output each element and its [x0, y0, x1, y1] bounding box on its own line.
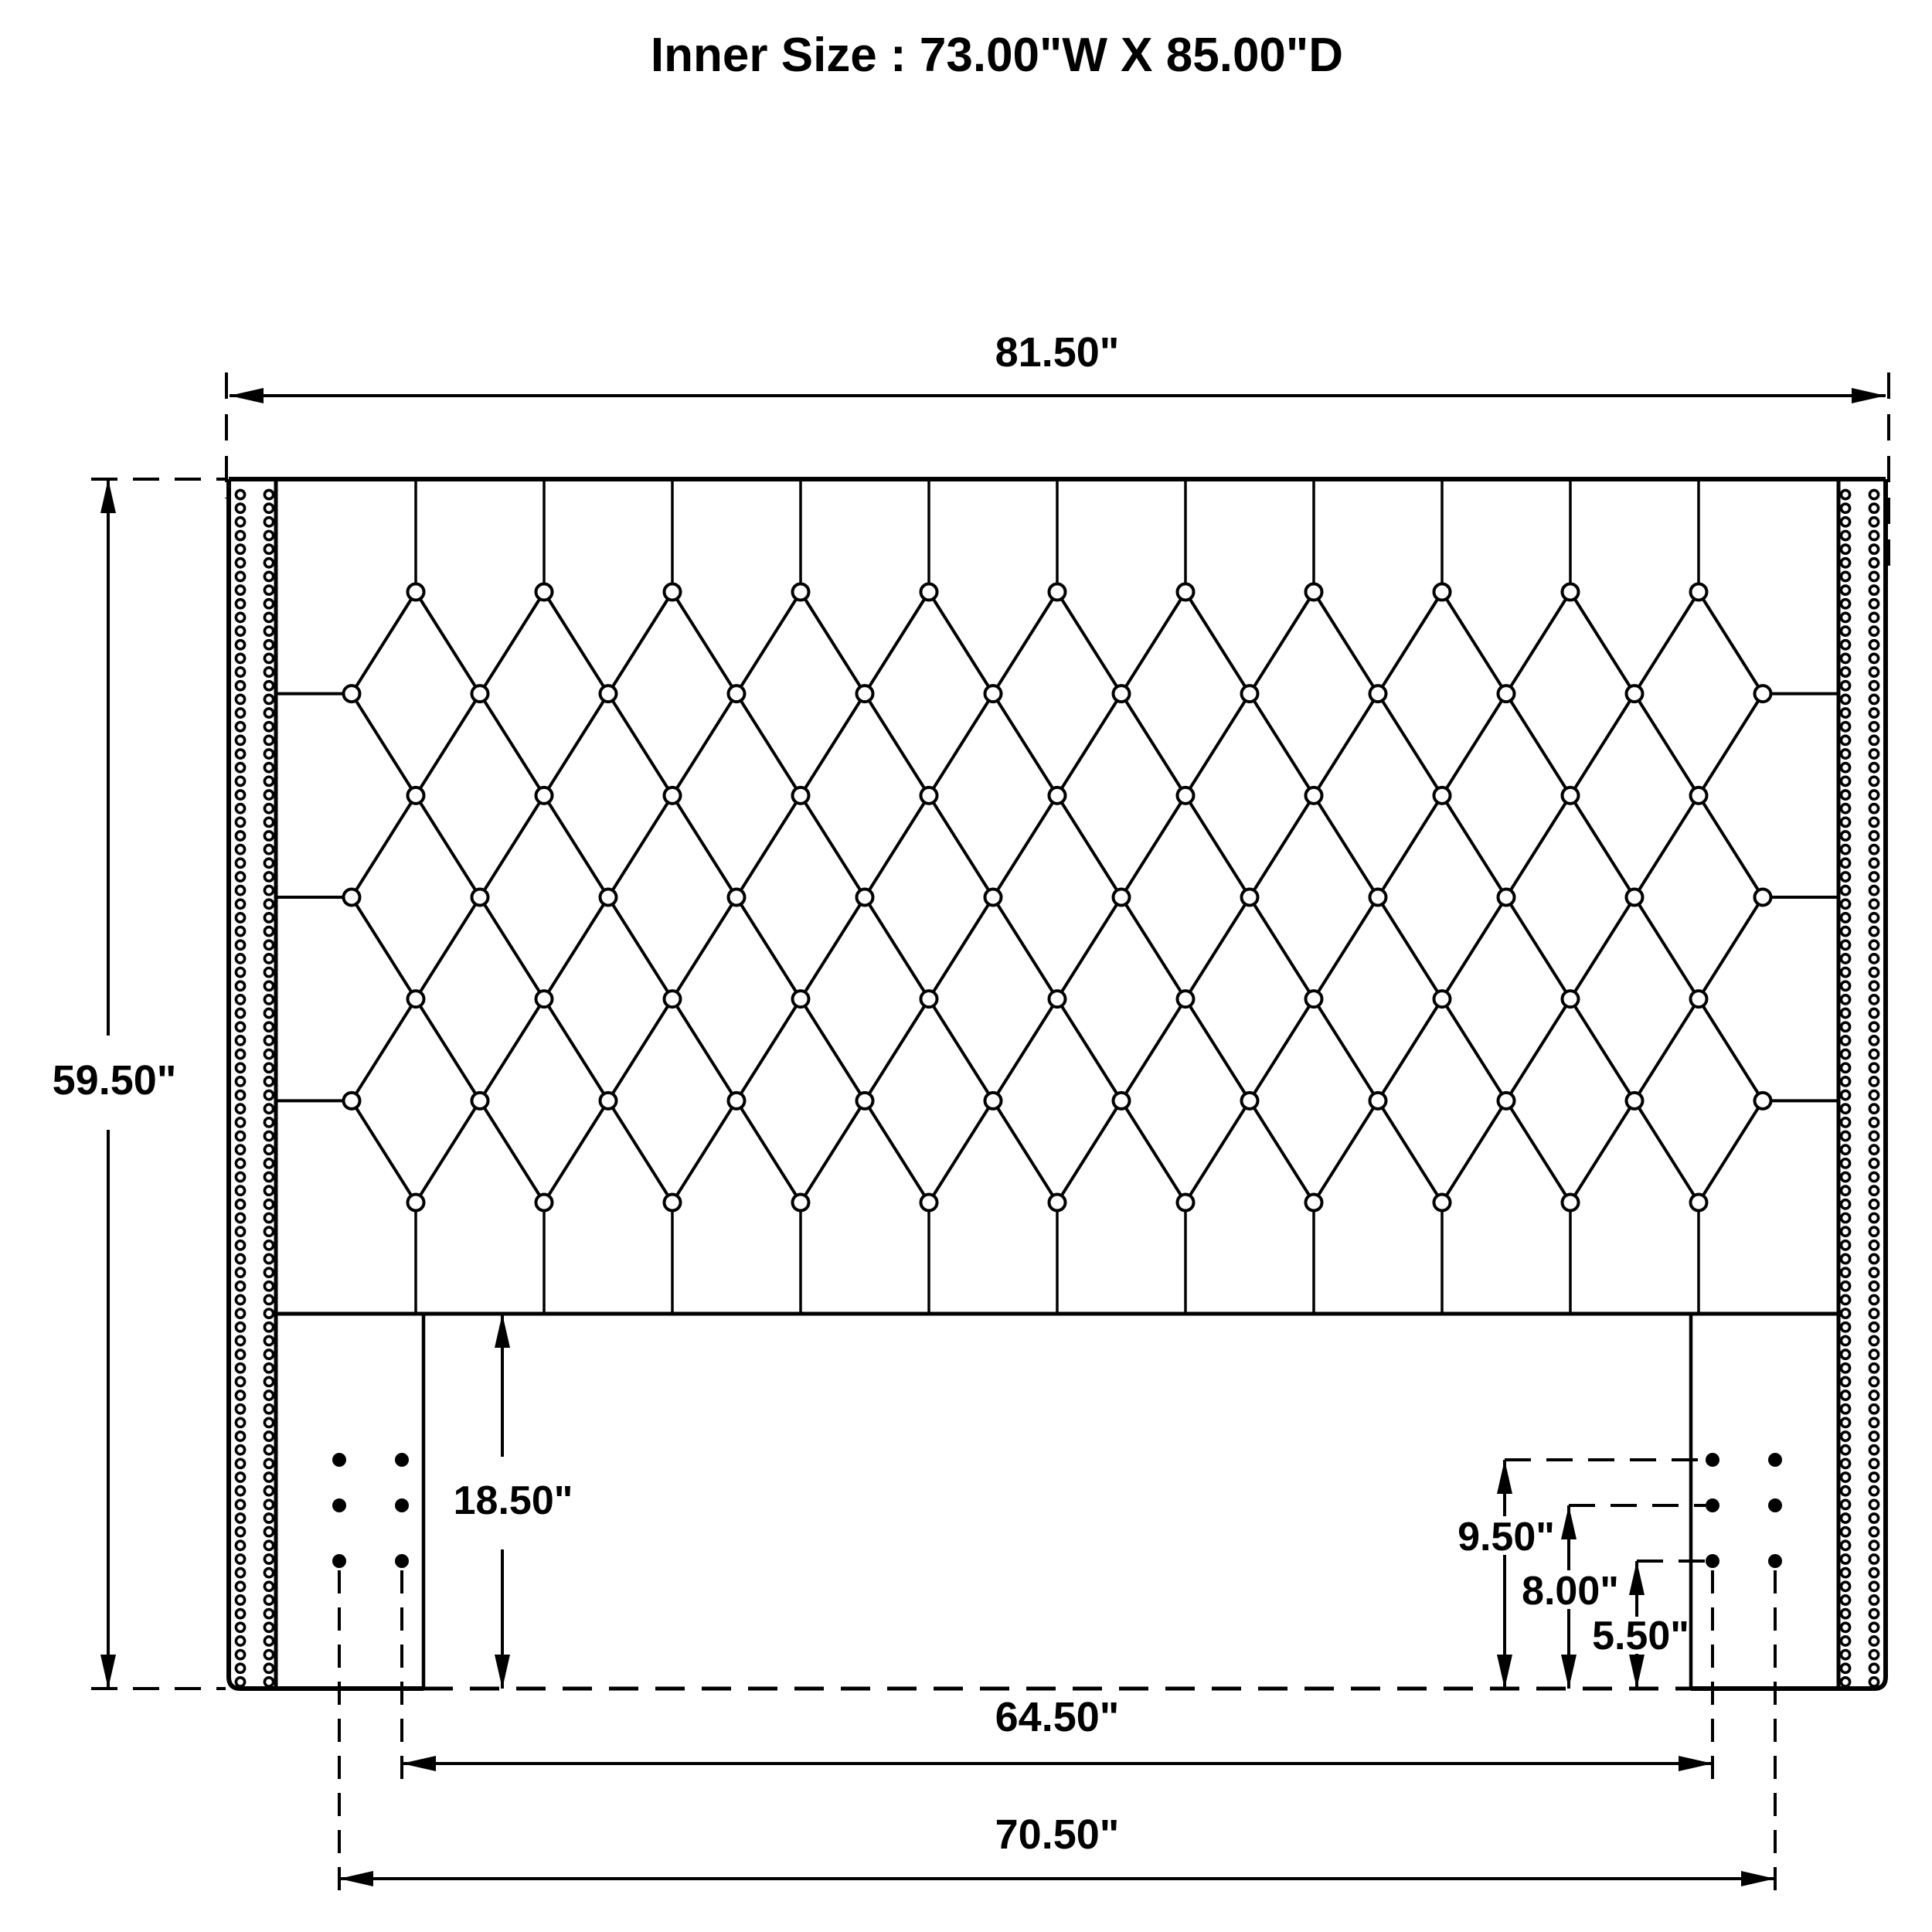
nailhead-circle	[264, 518, 273, 526]
nailhead-circle	[236, 818, 244, 826]
nailhead-circle	[1869, 1309, 1878, 1318]
tuft-diagonal	[1442, 592, 1506, 694]
tuft-diagonal	[1185, 694, 1250, 796]
bolt-hole	[1768, 1498, 1782, 1512]
nailhead-circle	[1869, 1104, 1878, 1113]
nailhead-circle	[264, 764, 273, 772]
tuft-diagonal	[1250, 795, 1314, 897]
tuft-button	[921, 787, 937, 804]
nailhead-circle	[1841, 1459, 1849, 1468]
nailhead-circle	[236, 1090, 244, 1099]
nailhead-circle	[1869, 586, 1878, 594]
nailhead-circle	[264, 995, 273, 1004]
tuft-diagonal	[736, 999, 801, 1101]
tuft-diagonal	[929, 1100, 993, 1202]
dim-arrow	[1679, 1756, 1713, 1771]
nailhead-circle	[264, 1555, 273, 1563]
tuft-button	[600, 1093, 617, 1109]
nailhead-circle	[1869, 490, 1878, 498]
nailhead-circle	[236, 1200, 244, 1209]
nailhead-circle	[236, 668, 244, 676]
nailhead-circle	[236, 654, 244, 662]
nailhead-circle	[236, 913, 244, 922]
tuft-button	[1627, 889, 1643, 906]
tuft-diagonal	[608, 795, 672, 897]
nailhead-circle	[264, 900, 273, 908]
nailhead-circle	[1869, 1664, 1878, 1672]
nailhead-circle	[264, 1514, 273, 1522]
tuft-diagonal	[1057, 999, 1121, 1101]
nailhead-circle	[1841, 1350, 1849, 1359]
nailhead-circle	[264, 1651, 273, 1659]
dim-label-leg-height: 18.50"	[454, 1478, 573, 1523]
dim-arrow	[1497, 1655, 1512, 1689]
nailhead-circle	[1841, 1309, 1849, 1318]
nailhead-circle	[1869, 1596, 1878, 1604]
nailhead-circle	[236, 1678, 244, 1686]
nailhead-circle	[1869, 1118, 1878, 1127]
nailhead-circle	[264, 1200, 273, 1209]
nailhead-circle	[1869, 1022, 1878, 1031]
tuft-button	[1563, 1195, 1579, 1211]
nailhead-circle	[1841, 1049, 1849, 1058]
headboard-dimension-drawing: Inner Size : 73.00"W X 85.00"D 81.50" 59…	[0, 0, 1932, 1932]
tuft-button	[1691, 991, 1707, 1007]
nailhead-circle	[264, 1063, 273, 1072]
dim-label-bolt-span-inner: 64.50"	[995, 1694, 1120, 1740]
nailhead-circle	[264, 723, 273, 731]
nailhead-circle	[264, 1610, 273, 1618]
dim-arrow	[100, 479, 116, 513]
tuft-button	[793, 1195, 809, 1211]
nailhead-circle	[264, 1104, 273, 1113]
nailhead-circle	[236, 490, 244, 498]
tuft-diagonal	[929, 694, 993, 796]
nailhead-circle	[264, 654, 273, 662]
tuft-diagonal	[1378, 897, 1442, 999]
nailhead-circle	[236, 1541, 244, 1549]
nailhead-circle	[264, 559, 273, 567]
nailhead-circle	[1841, 586, 1849, 594]
tuft-diagonal	[1699, 897, 1763, 999]
tuft-button	[793, 991, 809, 1007]
tuft-button	[1178, 1195, 1194, 1211]
tuft-diagonal	[1634, 795, 1699, 897]
tuft-button	[665, 1195, 681, 1211]
nailhead-circle	[1869, 559, 1878, 567]
nailhead-circle	[236, 1186, 244, 1195]
dim-arrow	[1629, 1561, 1645, 1595]
nailhead-circle	[1841, 954, 1849, 963]
nailhead-circle	[264, 1500, 273, 1509]
tuft-button	[408, 991, 424, 1007]
nailhead-circle	[1841, 1418, 1849, 1427]
dim-arrow	[1561, 1505, 1577, 1539]
tuft-button	[1178, 584, 1194, 600]
nailhead-circle	[264, 872, 273, 881]
nailhead-circle	[1869, 1241, 1878, 1250]
tuft-button	[1691, 1195, 1707, 1211]
dim-label-bolt-row-bottom: 5.50"	[1592, 1614, 1689, 1658]
tuft-button	[344, 685, 360, 702]
nailhead-circle	[1841, 1651, 1849, 1659]
nailhead-circle	[1841, 531, 1849, 539]
dimension-lines	[91, 372, 1889, 1897]
tuft-button	[1242, 1093, 1258, 1109]
nailhead-circle	[236, 1336, 244, 1345]
tuft-diagonal	[416, 795, 480, 897]
tuft-diagonal	[1057, 592, 1121, 694]
tuft-diagonal	[1121, 897, 1185, 999]
nailhead-circle	[236, 1582, 244, 1590]
tuft-button	[985, 1093, 1002, 1109]
nailhead-circle	[1841, 968, 1849, 977]
tuft-button	[1691, 584, 1707, 600]
nailhead-circle	[1841, 1268, 1849, 1277]
tuft-button	[344, 889, 360, 906]
nailhead-circle	[236, 981, 244, 990]
tuft-button	[857, 685, 873, 702]
nailhead-circle	[236, 954, 244, 963]
tuft-button	[985, 685, 1002, 702]
nailhead-circle	[264, 1623, 273, 1631]
tuft-diagonal	[1314, 795, 1378, 897]
nailhead-circle	[236, 1172, 244, 1181]
tuft-diagonal	[1057, 795, 1121, 897]
nailhead-circle	[236, 531, 244, 539]
tuft-diagonal	[1699, 694, 1763, 796]
nailhead-circle	[236, 1063, 244, 1072]
tuft-button	[1049, 787, 1066, 804]
nailhead-circle	[264, 1118, 273, 1127]
tuft-diagonal	[865, 694, 929, 796]
nailhead-circle	[236, 627, 244, 635]
tuft-diagonal	[736, 592, 801, 694]
nailhead-circle	[236, 1377, 244, 1386]
nailhead-circle	[236, 1036, 244, 1045]
nailhead-circle	[1841, 1569, 1849, 1577]
tuft-diagonal	[544, 592, 608, 694]
tuft-diagonal	[1570, 694, 1634, 796]
nailhead-circle	[1869, 777, 1878, 785]
tuft-diagonal	[352, 999, 416, 1101]
bolt-hole	[395, 1498, 409, 1512]
tuft-diagonal	[608, 897, 672, 999]
nailhead-circle	[1841, 1432, 1849, 1440]
nailhead-circle	[264, 1295, 273, 1304]
tuft-button	[857, 1093, 873, 1109]
nailhead-circle	[1869, 1336, 1878, 1345]
nailhead-circle	[1869, 804, 1878, 813]
nailhead-circle	[1869, 886, 1878, 895]
nailhead-circle	[264, 1022, 273, 1031]
nailhead-circle	[1869, 572, 1878, 580]
nailhead-circle	[1869, 627, 1878, 635]
nailhead-circle	[236, 641, 244, 649]
nailhead-circle	[236, 1282, 244, 1291]
tuft-button	[408, 584, 424, 600]
nailhead-circle	[236, 504, 244, 512]
tuft-diagonal	[352, 592, 416, 694]
tuft-diagonal	[352, 897, 416, 999]
nailhead-circle	[264, 750, 273, 758]
nailhead-circle	[236, 900, 244, 908]
tuft-diagonal	[993, 592, 1057, 694]
tuft-diagonal	[1442, 795, 1506, 897]
tufting-buttons	[344, 584, 1771, 1211]
tuft-diagonal	[1699, 1100, 1763, 1202]
tuft-diagonal	[416, 999, 480, 1101]
nailhead-circle	[236, 559, 244, 567]
nailhead-circle	[1869, 913, 1878, 922]
nailhead-circle	[236, 845, 244, 854]
nailhead-circle	[1841, 709, 1849, 717]
nailhead-circle	[264, 777, 273, 785]
nailhead-circle	[264, 627, 273, 635]
nailhead-circle	[264, 1364, 273, 1372]
drawing-canvas: Inner Size : 73.00"W X 85.00"D 81.50" 59…	[0, 0, 1932, 1932]
dim-arrow	[1741, 1871, 1775, 1886]
tuft-diagonal	[672, 999, 736, 1101]
nailhead-circle	[1841, 1022, 1849, 1031]
nailhead-circle	[1841, 1036, 1849, 1045]
nailhead-circle	[1869, 1405, 1878, 1413]
nailhead-circle	[236, 545, 244, 553]
nailhead-circle	[1869, 1514, 1878, 1522]
bolt-hole	[1768, 1453, 1782, 1467]
tuft-diagonal	[1250, 592, 1314, 694]
tufting-lattice	[276, 479, 1838, 1314]
nailhead-circle	[264, 1254, 273, 1263]
nailhead-circle	[264, 791, 273, 799]
nailhead-circle	[264, 1227, 273, 1236]
drawing-title: Inner Size : 73.00"W X 85.00"D	[651, 29, 1343, 82]
nailhead-circle	[264, 1036, 273, 1045]
nailhead-circle	[236, 1446, 244, 1454]
nailhead-circle	[1869, 545, 1878, 553]
tuft-button	[1434, 787, 1451, 804]
tuft-diagonal	[1570, 1100, 1634, 1202]
nailhead-circle	[264, 545, 273, 553]
tuft-button	[1242, 889, 1258, 906]
nailhead-circle	[236, 736, 244, 744]
nailhead-circle	[236, 1364, 244, 1372]
nailhead-circle	[236, 1295, 244, 1304]
tuft-diagonal	[352, 795, 416, 897]
nailhead-circle	[1841, 668, 1849, 676]
tuft-button	[1434, 991, 1451, 1007]
nailhead-circle	[1841, 1364, 1849, 1372]
tuft-diagonal	[993, 795, 1057, 897]
nailhead-circle	[1869, 1678, 1878, 1686]
nailhead-circle	[236, 1664, 244, 1672]
nailhead-circle	[1869, 791, 1878, 799]
nailhead-circle	[1841, 1241, 1849, 1250]
nailhead-circle	[1841, 518, 1849, 526]
nailhead-circle	[1869, 682, 1878, 690]
nailhead-circle	[264, 1582, 273, 1590]
tuft-button	[1306, 1195, 1322, 1211]
tuft-button	[1114, 685, 1130, 702]
nailhead-circle	[1869, 1295, 1878, 1304]
tuft-diagonal	[544, 1100, 608, 1202]
bolt-hole	[1768, 1554, 1782, 1568]
nailhead-circle	[1841, 886, 1849, 895]
tuft-diagonal	[608, 694, 672, 796]
nailhead-circle	[236, 1555, 244, 1563]
tuft-diagonal	[929, 592, 993, 694]
nailhead-circle	[264, 832, 273, 840]
tuft-diagonal	[865, 592, 929, 694]
tuft-diagonal	[544, 795, 608, 897]
tuft-button	[1306, 787, 1322, 804]
nailhead-circle	[1841, 1090, 1849, 1099]
tuft-diagonal	[1570, 897, 1634, 999]
bolt-hole	[395, 1554, 409, 1568]
nailhead-circle	[1841, 1637, 1849, 1645]
nailhead-circle	[1869, 668, 1878, 676]
tuft-button	[1049, 584, 1066, 600]
tuft-diagonal	[480, 897, 544, 999]
tuft-button	[536, 584, 553, 600]
tuft-button	[1498, 889, 1515, 906]
tuft-diagonal	[480, 795, 544, 897]
tuft-diagonal	[801, 1100, 865, 1202]
nailhead-circle	[1869, 927, 1878, 936]
nailhead-circle	[1841, 777, 1849, 785]
nailhead-circle	[264, 1596, 273, 1604]
bolt-hole	[332, 1498, 346, 1512]
nailhead-circle	[1869, 1254, 1878, 1263]
bolt-hole	[395, 1453, 409, 1467]
dim-label-bolt-row-top: 9.50"	[1458, 1515, 1555, 1560]
nailhead-circle	[1869, 900, 1878, 908]
tuft-diagonal	[736, 795, 801, 897]
nailhead-circle	[236, 1528, 244, 1536]
nailhead-circle	[236, 682, 244, 690]
nailhead-circle	[1841, 1623, 1849, 1631]
nailhead-circle	[236, 1022, 244, 1031]
nailhead-circle	[236, 1391, 244, 1400]
tuft-button	[1498, 685, 1515, 702]
nailhead-circle	[1869, 1377, 1878, 1386]
nailhead-circle	[236, 1418, 244, 1427]
tuft-button	[1434, 1195, 1451, 1211]
tuft-diagonal	[801, 694, 865, 796]
nailhead-circle	[1841, 1131, 1849, 1140]
nailhead-circle	[264, 1637, 273, 1645]
tuft-button	[1755, 889, 1771, 906]
nailhead-circle	[1869, 654, 1878, 662]
nailhead-circle	[236, 1350, 244, 1359]
tuft-diagonal	[352, 694, 416, 796]
nailhead-circle	[264, 859, 273, 867]
nailhead-circle	[236, 1227, 244, 1236]
dim-arrow	[1629, 1655, 1645, 1689]
tuft-diagonal	[1699, 795, 1763, 897]
nailhead-circle	[1869, 1323, 1878, 1332]
tuft-diagonal	[993, 999, 1057, 1101]
dim-arrow	[1497, 1460, 1512, 1494]
bolt-hole	[1706, 1554, 1719, 1568]
nailhead-circle	[236, 1131, 244, 1140]
nailhead-circle	[236, 586, 244, 594]
nailhead-circle	[1869, 1063, 1878, 1072]
nailhead-circle	[1841, 1664, 1849, 1672]
nailhead-circle	[264, 1241, 273, 1250]
nailhead-circle	[1841, 750, 1849, 758]
tuft-button	[472, 889, 488, 906]
nailhead-circle	[1869, 750, 1878, 758]
nailhead-circle	[236, 1323, 244, 1332]
nailhead-circle	[236, 764, 244, 772]
tuft-button	[1114, 889, 1130, 906]
nailhead-circle	[1869, 859, 1878, 867]
nailhead-circle	[1869, 1418, 1878, 1427]
nailhead-circle	[1841, 995, 1849, 1004]
tuft-button	[408, 1195, 424, 1211]
nailhead-circle	[236, 1432, 244, 1440]
tuft-button	[1755, 685, 1771, 702]
nailhead-circle	[1869, 1459, 1878, 1468]
tuft-button	[665, 991, 681, 1007]
tuft-diagonal	[480, 592, 544, 694]
nailhead-circle	[1869, 736, 1878, 744]
nailhead-circle	[1841, 1500, 1849, 1509]
nailhead-circle	[264, 586, 273, 594]
tuft-button	[729, 889, 745, 906]
nailhead-circle	[264, 736, 273, 744]
nailhead-circle	[264, 1172, 273, 1181]
tuft-diagonal	[1185, 999, 1250, 1101]
tuft-diagonal	[865, 999, 929, 1101]
tuft-diagonal	[1250, 694, 1314, 796]
nailhead-circle	[264, 913, 273, 922]
nailhead-circle	[1841, 736, 1849, 744]
nailhead-circle	[236, 1241, 244, 1250]
nailhead-circle	[264, 1159, 273, 1168]
nailhead-circle	[264, 1009, 273, 1017]
tuft-button	[1563, 584, 1579, 600]
tuft-diagonal	[1699, 592, 1763, 694]
nailhead-circle	[1869, 1049, 1878, 1058]
tuft-diagonal	[929, 897, 993, 999]
tuft-diagonal	[480, 1100, 544, 1202]
nailhead-circle	[264, 1473, 273, 1481]
nailhead-circle	[264, 1268, 273, 1277]
nailhead-circle	[1869, 1200, 1878, 1209]
tuft-diagonal	[1506, 1100, 1570, 1202]
nailhead-circle	[1869, 1500, 1878, 1509]
tuft-diagonal	[1442, 897, 1506, 999]
nailhead-circle	[1841, 940, 1849, 949]
nailhead-circle	[1869, 1391, 1878, 1400]
tuft-button	[1498, 1093, 1515, 1109]
nailhead-circle	[1869, 1623, 1878, 1631]
nailhead-circle	[1869, 1036, 1878, 1045]
tuft-button	[1242, 685, 1258, 702]
nailhead-circle	[264, 1336, 273, 1345]
tuft-diagonal	[865, 1100, 929, 1202]
tuft-button	[921, 1195, 937, 1211]
nailhead-circle	[236, 750, 244, 758]
nailhead-circle	[1869, 1131, 1878, 1140]
nailhead-circle	[1869, 1145, 1878, 1154]
tuft-diagonal	[1057, 694, 1121, 796]
nailhead-circle	[1841, 1254, 1849, 1263]
tuft-diagonal	[1314, 999, 1378, 1101]
tuft-button	[665, 787, 681, 804]
